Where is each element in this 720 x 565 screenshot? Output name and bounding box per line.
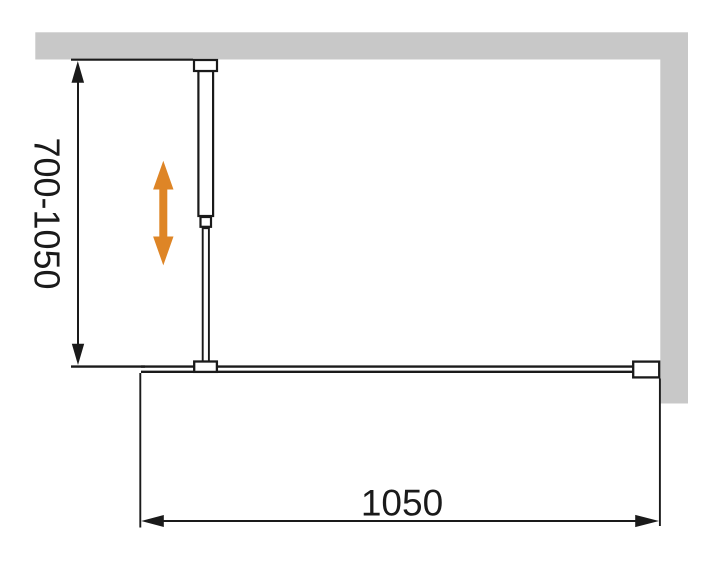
svg-text:1050: 1050	[361, 482, 443, 523]
svg-text:700-1050: 700-1050	[27, 137, 68, 289]
